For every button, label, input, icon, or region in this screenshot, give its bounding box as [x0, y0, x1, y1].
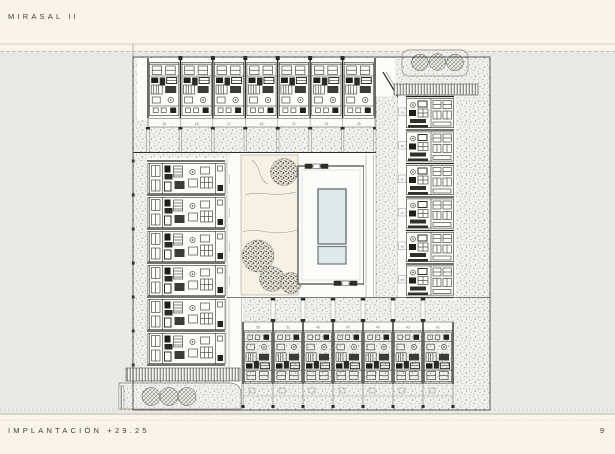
unit-number: 45	[376, 325, 380, 329]
unit-number: 16	[195, 122, 199, 126]
right-column-units: 283032343638	[398, 96, 488, 300]
project-title: MIRASAL II	[8, 12, 79, 21]
pergola	[126, 368, 240, 381]
courtyard-tree	[260, 267, 285, 292]
unit-number: 17	[227, 122, 231, 126]
tree	[178, 388, 196, 406]
unit-number: 32	[401, 178, 405, 182]
unit-number: 30	[401, 144, 405, 148]
tree	[429, 54, 446, 71]
unit-number: 51	[286, 325, 290, 329]
swimming-pool	[318, 189, 346, 244]
unit-number: 15	[162, 122, 166, 126]
tree	[142, 388, 160, 406]
slide: 1516171821232502040608101228303234363853…	[0, 0, 615, 454]
courtyard-tree	[271, 159, 298, 186]
unit-number: 25	[357, 122, 361, 126]
unit-number: 28	[401, 111, 405, 115]
pool-deck	[298, 164, 364, 286]
unit-number: 21	[292, 122, 296, 126]
unit-number: 43	[406, 325, 410, 329]
tree	[160, 388, 178, 406]
kids-pool	[318, 247, 346, 265]
unit-number: 47	[346, 325, 350, 329]
south-west-landscape	[119, 368, 241, 409]
top-row-units: 15161718212325	[137, 56, 395, 127]
pergola	[394, 84, 478, 95]
drawing-caption: IMPLANTACIÓN +29.25	[8, 426, 150, 435]
page-number: 9	[600, 426, 605, 435]
unit-number: 36	[401, 245, 405, 249]
unit-number: 49	[316, 325, 320, 329]
unit-number: 38	[401, 278, 405, 282]
unit-number: 18	[260, 122, 264, 126]
site-plan-drawing: 1516171821232502040608101228303234363853…	[0, 0, 615, 454]
unit-number: 53	[256, 325, 260, 329]
unit-number: 34	[401, 211, 405, 215]
unit-number: 23	[324, 122, 328, 126]
unit-number: 41	[436, 325, 440, 329]
